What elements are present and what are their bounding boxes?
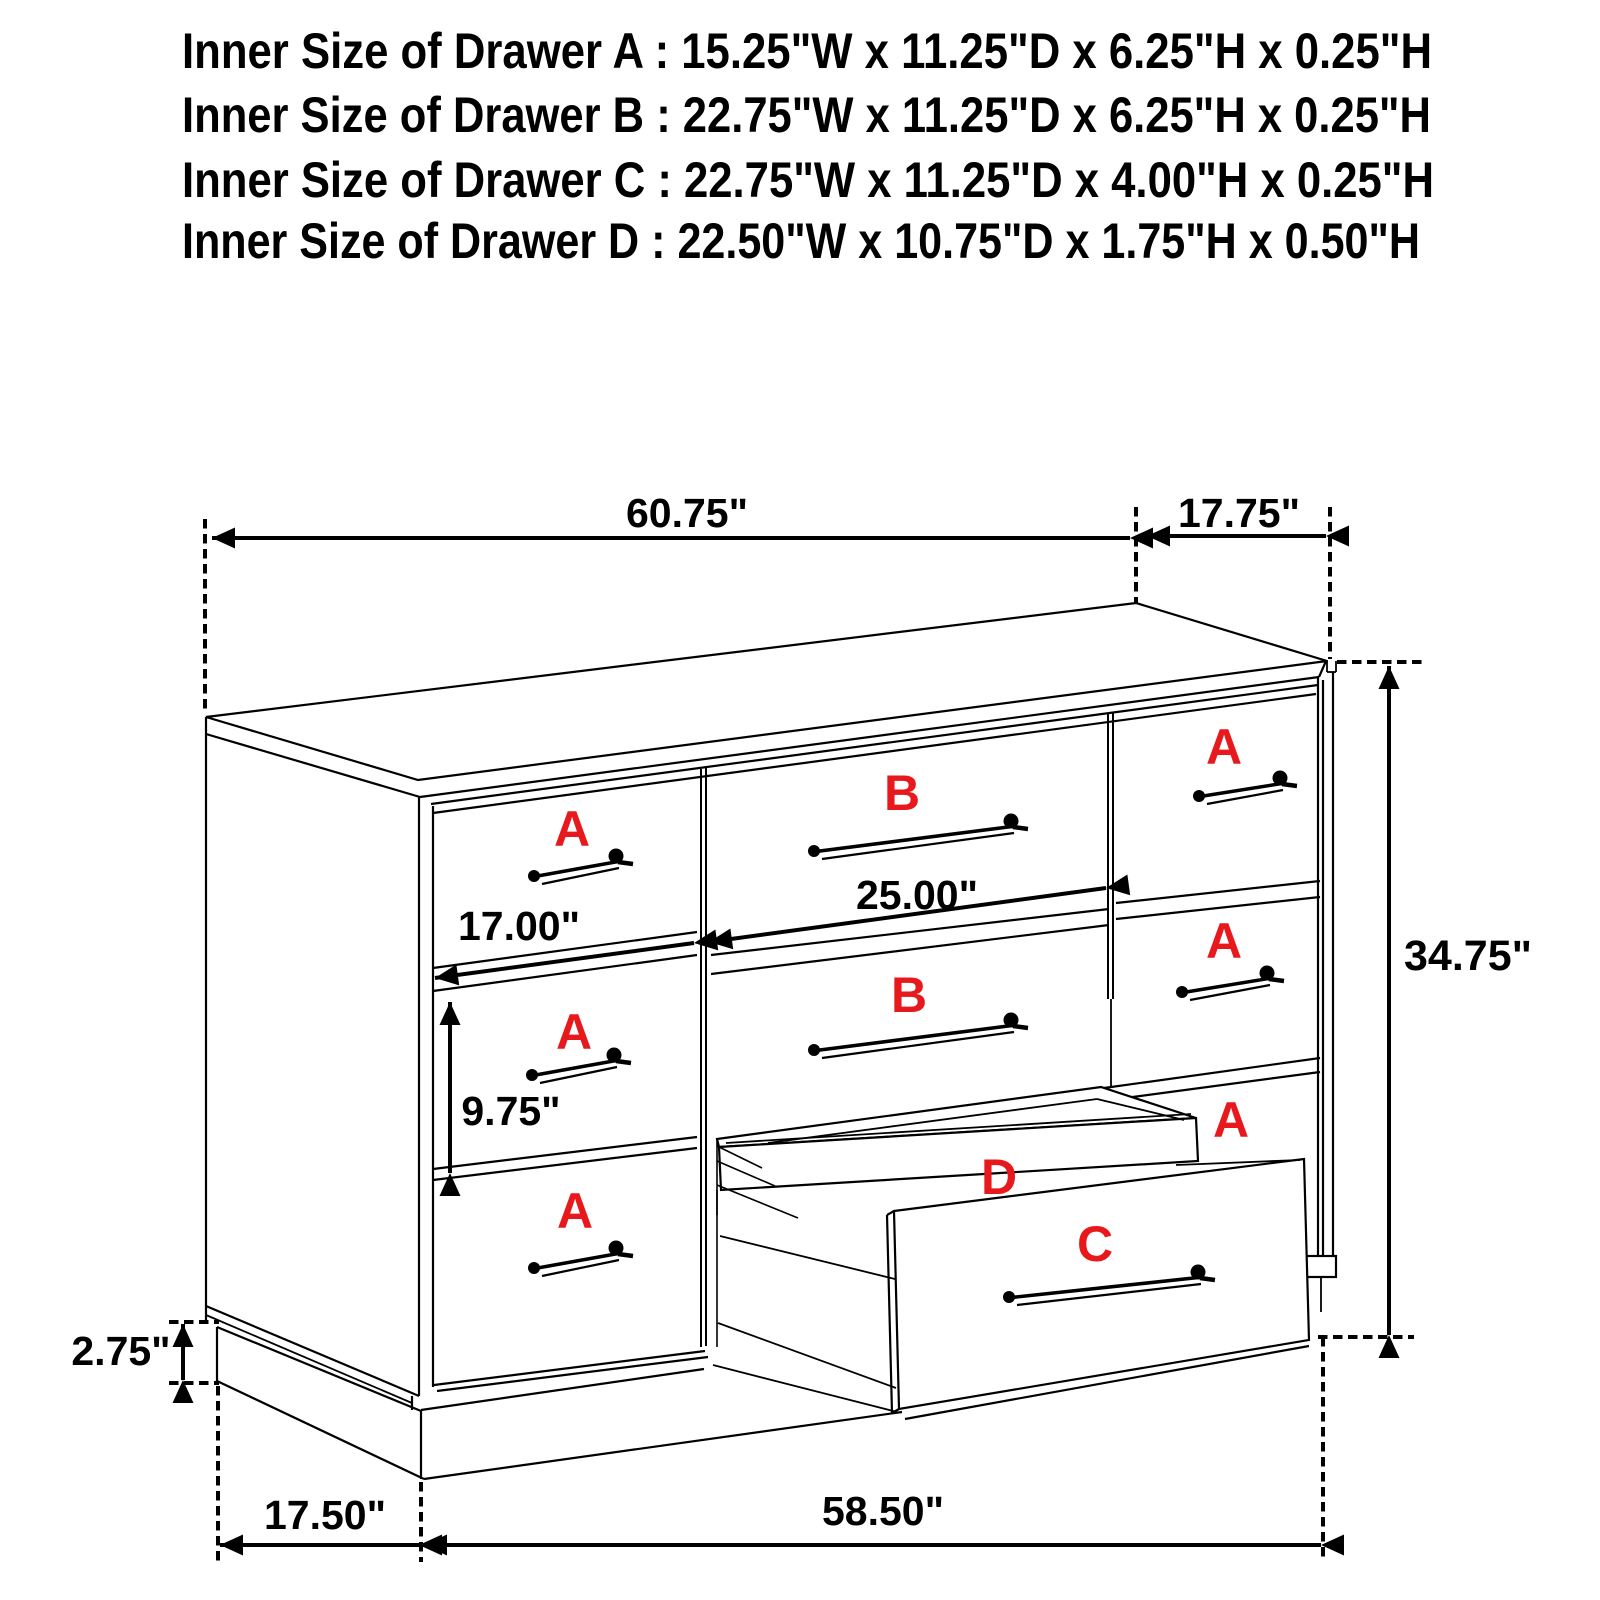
svg-text:A: A: [1206, 913, 1242, 969]
svg-text:25.00": 25.00": [856, 872, 978, 918]
svg-text:Inner Size of Drawer B : 22.75: Inner Size of Drawer B : 22.75"W x 11.25…: [182, 87, 1431, 143]
svg-text:58.50": 58.50": [822, 1488, 944, 1534]
svg-text:17.75": 17.75": [1178, 490, 1300, 536]
svg-text:60.75": 60.75": [626, 490, 748, 536]
svg-text:A: A: [554, 801, 590, 857]
svg-text:Inner Size of Drawer A : 15.25: Inner Size of Drawer A : 15.25"W x 11.25…: [182, 23, 1432, 79]
svg-text:A: A: [1213, 1092, 1249, 1148]
svg-text:34.75": 34.75": [1404, 932, 1532, 980]
svg-text:17.50": 17.50": [264, 1492, 386, 1538]
svg-text:2.75": 2.75": [71, 1328, 170, 1374]
svg-text:A: A: [1206, 719, 1242, 775]
svg-text:Inner Size of Drawer D : 22.5: Inner Size of Drawer D : 22.50"W x 10.75…: [182, 213, 1420, 269]
svg-text:A: A: [557, 1183, 593, 1239]
svg-text:B: B: [884, 765, 920, 821]
svg-text:Inner Size of Drawer C : 22.75: Inner Size of Drawer C : 22.75"W x 11.25…: [182, 152, 1434, 208]
svg-text:D: D: [981, 1149, 1017, 1205]
svg-text:9.75": 9.75": [461, 1088, 560, 1134]
svg-text:C: C: [1077, 1216, 1113, 1272]
svg-text:B: B: [891, 967, 927, 1023]
svg-text:17.00": 17.00": [458, 903, 580, 949]
svg-text:A: A: [556, 1004, 592, 1060]
